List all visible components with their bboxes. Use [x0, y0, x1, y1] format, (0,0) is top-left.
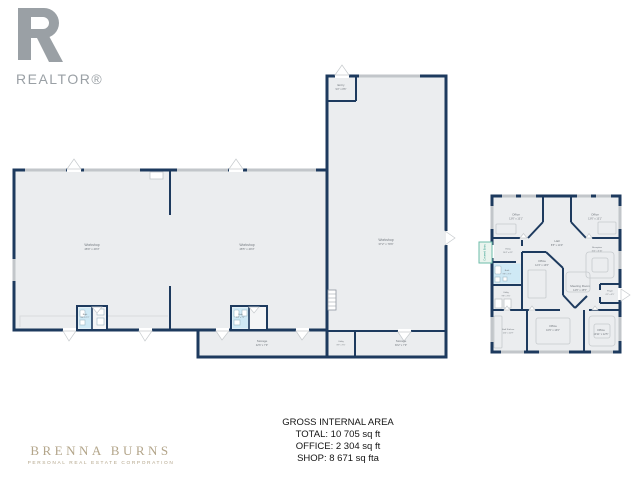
svg-text:Office: Office — [538, 259, 546, 263]
svg-text:15'4" x 6'10": 15'4" x 6'10" — [592, 251, 603, 253]
svg-text:13'6" x 13'1": 13'6" x 13'1" — [588, 217, 602, 220]
shop-plan: Bath 4'6" x 7'2" Bath 5'2" x 7'2" — [14, 65, 455, 357]
svg-text:Office: Office — [597, 328, 605, 332]
svg-text:48'5" x 49'3": 48'5" x 49'3" — [239, 247, 254, 251]
svg-text:9'2" x 8'6": 9'2" x 8'6" — [336, 88, 347, 91]
floor-plan-canvas: Bath 4'6" x 7'2" Bath 5'2" x 7'2" — [0, 0, 640, 480]
summary-office: OFFICE: 2 304 sq ft — [238, 441, 438, 453]
svg-text:Entry: Entry — [505, 248, 511, 251]
svg-text:5'2" x 7'2": 5'2" x 7'2" — [236, 317, 245, 319]
svg-text:Hall: Hall — [554, 239, 560, 243]
svg-text:Office: Office — [591, 213, 599, 217]
counter-fixture — [150, 172, 163, 179]
svg-text:Bath: Bath — [505, 269, 510, 272]
office-plan: Covered Entry Office 13'6" x 13'1" Offic… — [479, 196, 630, 352]
svg-text:Storage: Storage — [257, 339, 268, 343]
svg-text:30'2" x 7'9": 30'2" x 7'9" — [395, 344, 407, 347]
svg-text:8'5" x 14'0": 8'5" x 14'0" — [551, 244, 563, 247]
svg-text:Storage: Storage — [396, 339, 407, 343]
summary-shop: SHOP: 8 671 sq fta — [238, 453, 438, 465]
agent-brand: BRENNA BURNS PERSONAL REAL ESTATE CORPOR… — [26, 443, 176, 466]
svg-text:9'8" x 7'3": 9'8" x 7'3" — [503, 274, 512, 276]
svg-text:Office: Office — [512, 213, 520, 217]
svg-text:4'6" x 7'2": 4'6" x 7'2" — [81, 317, 90, 319]
area-summary: GROSS INTERNAL AREA TOTAL: 10 705 sq ft … — [238, 417, 438, 465]
room-label-workshop-mid: Workshop 48'5" x 49'3" — [239, 243, 254, 251]
bathroom-block-left: Bath 4'6" x 7'2" — [77, 306, 107, 330]
agent-name: BRENNA BURNS — [26, 443, 176, 459]
svg-text:Entry: Entry — [337, 83, 345, 87]
svg-text:Reception: Reception — [592, 246, 603, 249]
svg-text:13'6" x 13'1": 13'6" x 13'1" — [509, 217, 523, 220]
svg-text:48'9" x 49'3": 48'9" x 49'3" — [84, 247, 99, 251]
svg-text:14'6" x 15'5": 14'6" x 15'5" — [573, 289, 587, 292]
svg-text:Utility: Utility — [503, 291, 509, 294]
svg-text:Bath: Bath — [238, 313, 243, 316]
svg-text:12'4" x 13'6": 12'4" x 13'6" — [535, 264, 549, 267]
room-label-workshop-tall: Workshop 37'2" x 79'6" — [378, 238, 393, 246]
ladder-icon — [328, 290, 336, 310]
svg-text:Foyer: Foyer — [607, 290, 613, 293]
svg-text:16'9" x 13'0": 16'9" x 13'0" — [546, 329, 560, 332]
svg-text:11'5" x 12'9": 11'5" x 12'9" — [503, 333, 514, 335]
svg-text:Office: Office — [549, 324, 557, 328]
svg-text:8'9" x 7'6": 8'9" x 7'6" — [337, 344, 346, 346]
summary-total: TOTAL: 10 705 sq ft — [238, 429, 438, 441]
agent-tagline: PERSONAL REAL ESTATE CORPORATION — [26, 461, 176, 466]
svg-text:10'11" x 12'5": 10'11" x 12'5" — [594, 333, 609, 336]
covered-entry-label: Covered Entry — [483, 244, 487, 261]
svg-text:Bath: Bath — [83, 313, 88, 316]
svg-text:Utility: Utility — [338, 340, 344, 343]
svg-text:6'5" x 5'5": 6'5" x 5'5" — [606, 294, 615, 296]
covered-entry-marker: Covered Entry — [479, 242, 492, 263]
svg-text:Staff Kitchen: Staff Kitchen — [502, 328, 515, 331]
svg-text:9'8" x 7'6": 9'8" x 7'6" — [502, 296, 511, 298]
floorplan-flyer: REALTOR® — [0, 0, 640, 480]
svg-text:37'2" x 79'6": 37'2" x 79'6" — [378, 242, 393, 246]
svg-text:42'6" x 7'9": 42'6" x 7'9" — [256, 344, 268, 347]
bathroom-block-mid: Bath 5'2" x 7'2" — [231, 306, 267, 330]
svg-text:16'4" x 6'5": 16'4" x 6'5" — [503, 252, 513, 254]
svg-text:Meeting Room: Meeting Room — [570, 284, 590, 288]
room-label-workshop-left: Workshop 48'9" x 49'3" — [84, 243, 99, 251]
summary-title: GROSS INTERNAL AREA — [238, 417, 438, 429]
